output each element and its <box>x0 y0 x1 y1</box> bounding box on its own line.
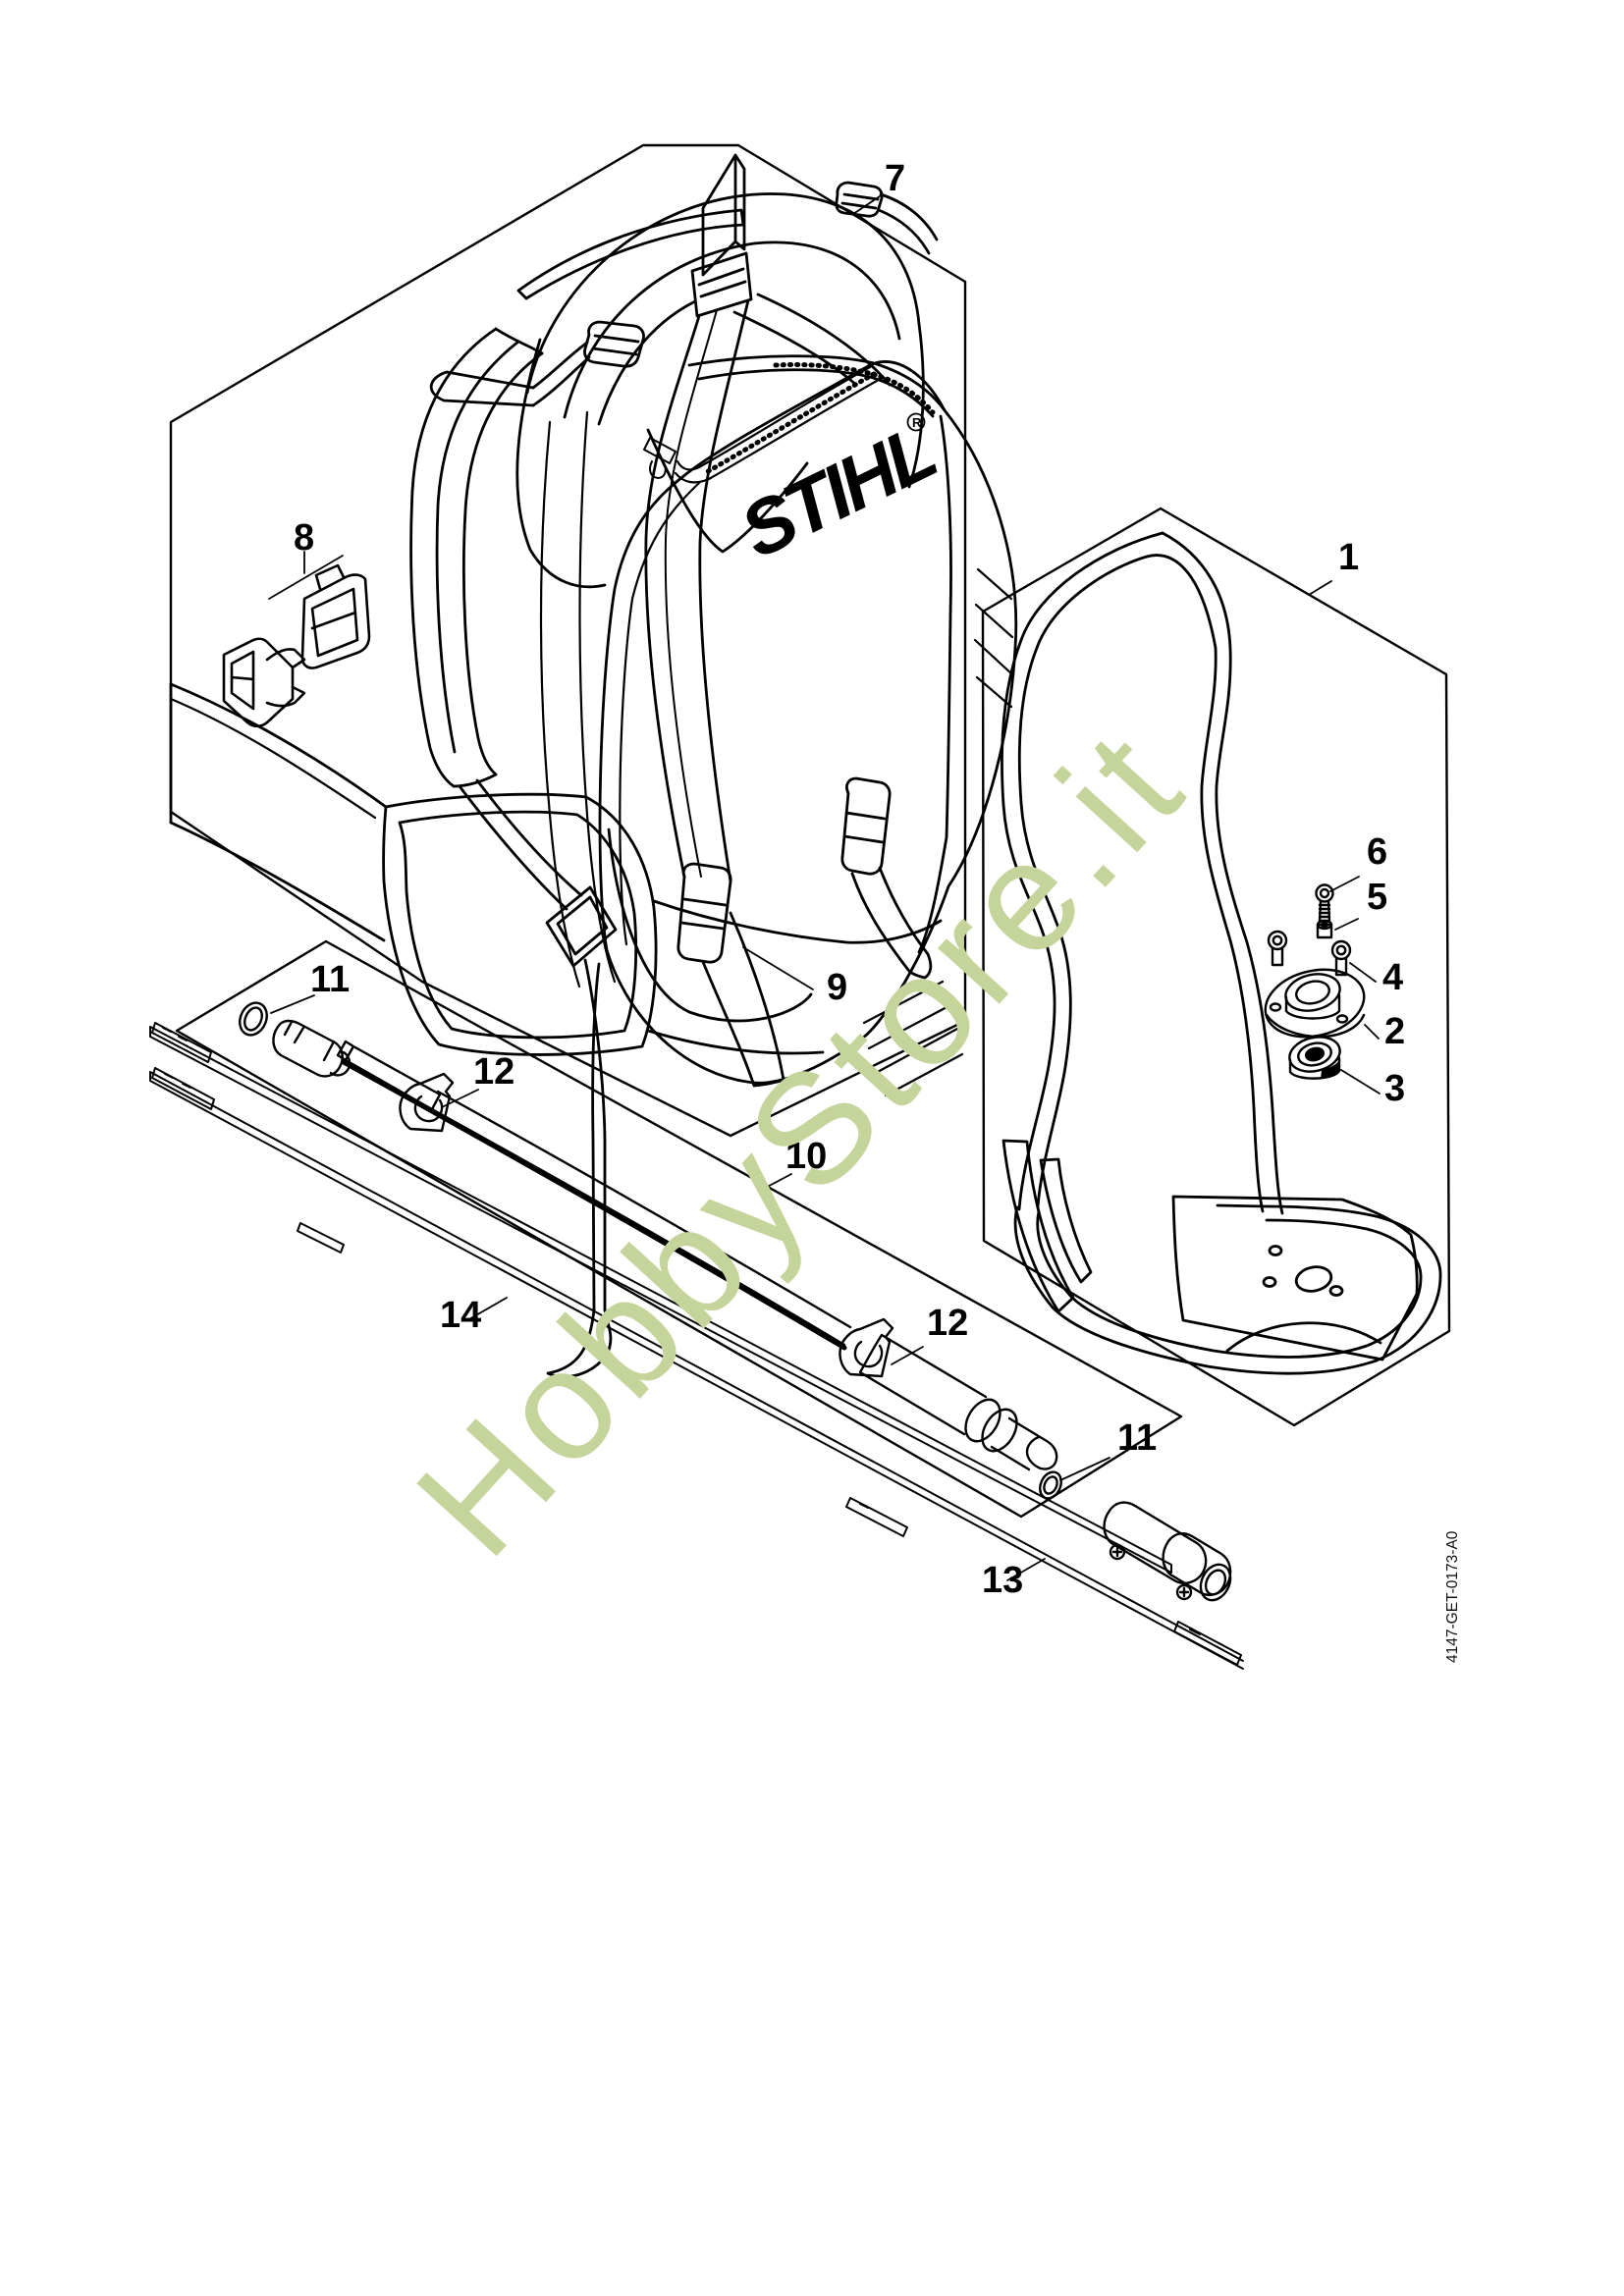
svg-text:R: R <box>912 415 922 430</box>
svg-text:14: 14 <box>440 1295 481 1336</box>
svg-text:1: 1 <box>1338 537 1359 578</box>
svg-text:5: 5 <box>1367 877 1387 918</box>
svg-text:7: 7 <box>885 158 905 199</box>
svg-text:4147-GET-0173-A0: 4147-GET-0173-A0 <box>1444 1530 1461 1663</box>
svg-text:3: 3 <box>1384 1068 1405 1109</box>
svg-text:11: 11 <box>310 959 350 1000</box>
svg-text:12: 12 <box>473 1051 514 1093</box>
svg-text:2: 2 <box>1384 1011 1405 1052</box>
svg-text:13: 13 <box>982 1560 1023 1601</box>
svg-text:4: 4 <box>1382 957 1403 998</box>
svg-text:12: 12 <box>927 1303 968 1344</box>
svg-text:8: 8 <box>294 517 314 559</box>
svg-text:11: 11 <box>1117 1417 1157 1459</box>
svg-text:6: 6 <box>1367 831 1387 873</box>
